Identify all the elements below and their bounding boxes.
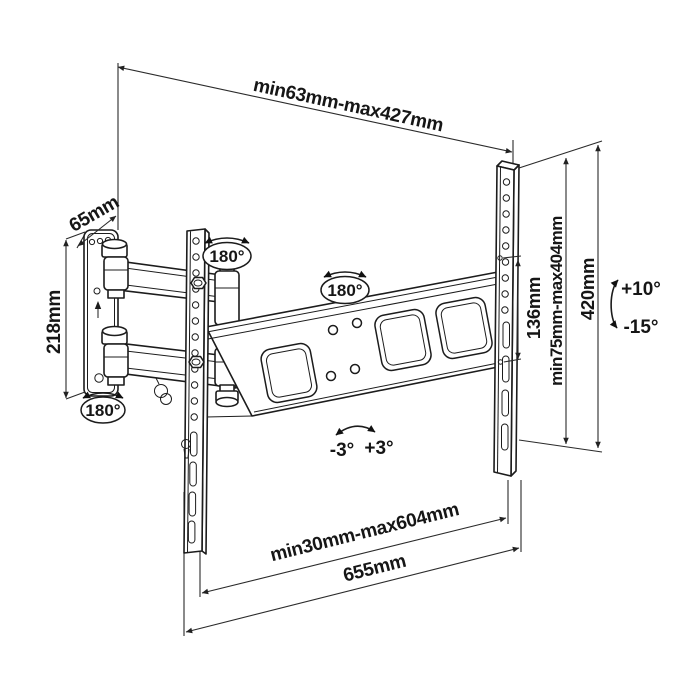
angle-level-plus-label: +3° <box>364 438 393 459</box>
level-annotation: -3° +3° <box>330 426 394 461</box>
cable-hook <box>155 378 172 405</box>
tilt-annotation: +10° -15° <box>611 279 661 338</box>
dim-depth-range-label: min63mm-max427mm <box>251 75 445 136</box>
angle-tilt-down-label: -15° <box>623 317 658 338</box>
dimension-vertical-range: min75mm-max404mm <box>547 158 566 444</box>
dimension-wall-plate-height: 218mm <box>44 232 85 399</box>
wall-mount-technical-drawing: min63mm-max427mm 65mm 218mm 136mm min75m… <box>0 0 700 700</box>
dimension-overall-width: 655mm <box>186 548 519 632</box>
wall-plate <box>84 230 128 396</box>
dim-hole-spacing-label: 136mm <box>523 277 544 339</box>
rotation-annotation-beam: 180° <box>321 272 369 304</box>
tilt-arrow-icon <box>611 280 618 328</box>
angle-swivel-beam-label: 180° <box>327 281 362 300</box>
level-arrow-icon <box>336 426 375 435</box>
plate-hinge-upper <box>102 240 128 299</box>
dimension-depth-range: min63mm-max427mm <box>118 67 512 152</box>
angle-swivel-elbow-label: 180° <box>209 247 244 266</box>
dimension-bracket-height: 420mm <box>577 145 598 448</box>
dim-wall-plate-height-label: 218mm <box>44 290 65 354</box>
inner-rail <box>184 229 209 554</box>
rotation-annotation-plate: 180° <box>81 393 125 423</box>
angle-tilt-up-label: +10° <box>621 279 661 300</box>
dim-vertical-range-label: min75mm-max404mm <box>547 216 566 386</box>
rotation-annotation-elbow: 180° <box>203 238 251 270</box>
plate-hinge-lower <box>102 327 128 386</box>
angle-level-minus-label: -3° <box>330 440 355 461</box>
dim-horizontal-range-label: min30mm-max604mm <box>268 499 461 566</box>
drawing-canvas: min63mm-max427mm 65mm 218mm 136mm min75m… <box>0 0 700 700</box>
dim-bracket-height-label: 420mm <box>577 258 598 320</box>
right-rail <box>494 161 519 476</box>
angle-swivel-plate-label: 180° <box>85 401 120 420</box>
